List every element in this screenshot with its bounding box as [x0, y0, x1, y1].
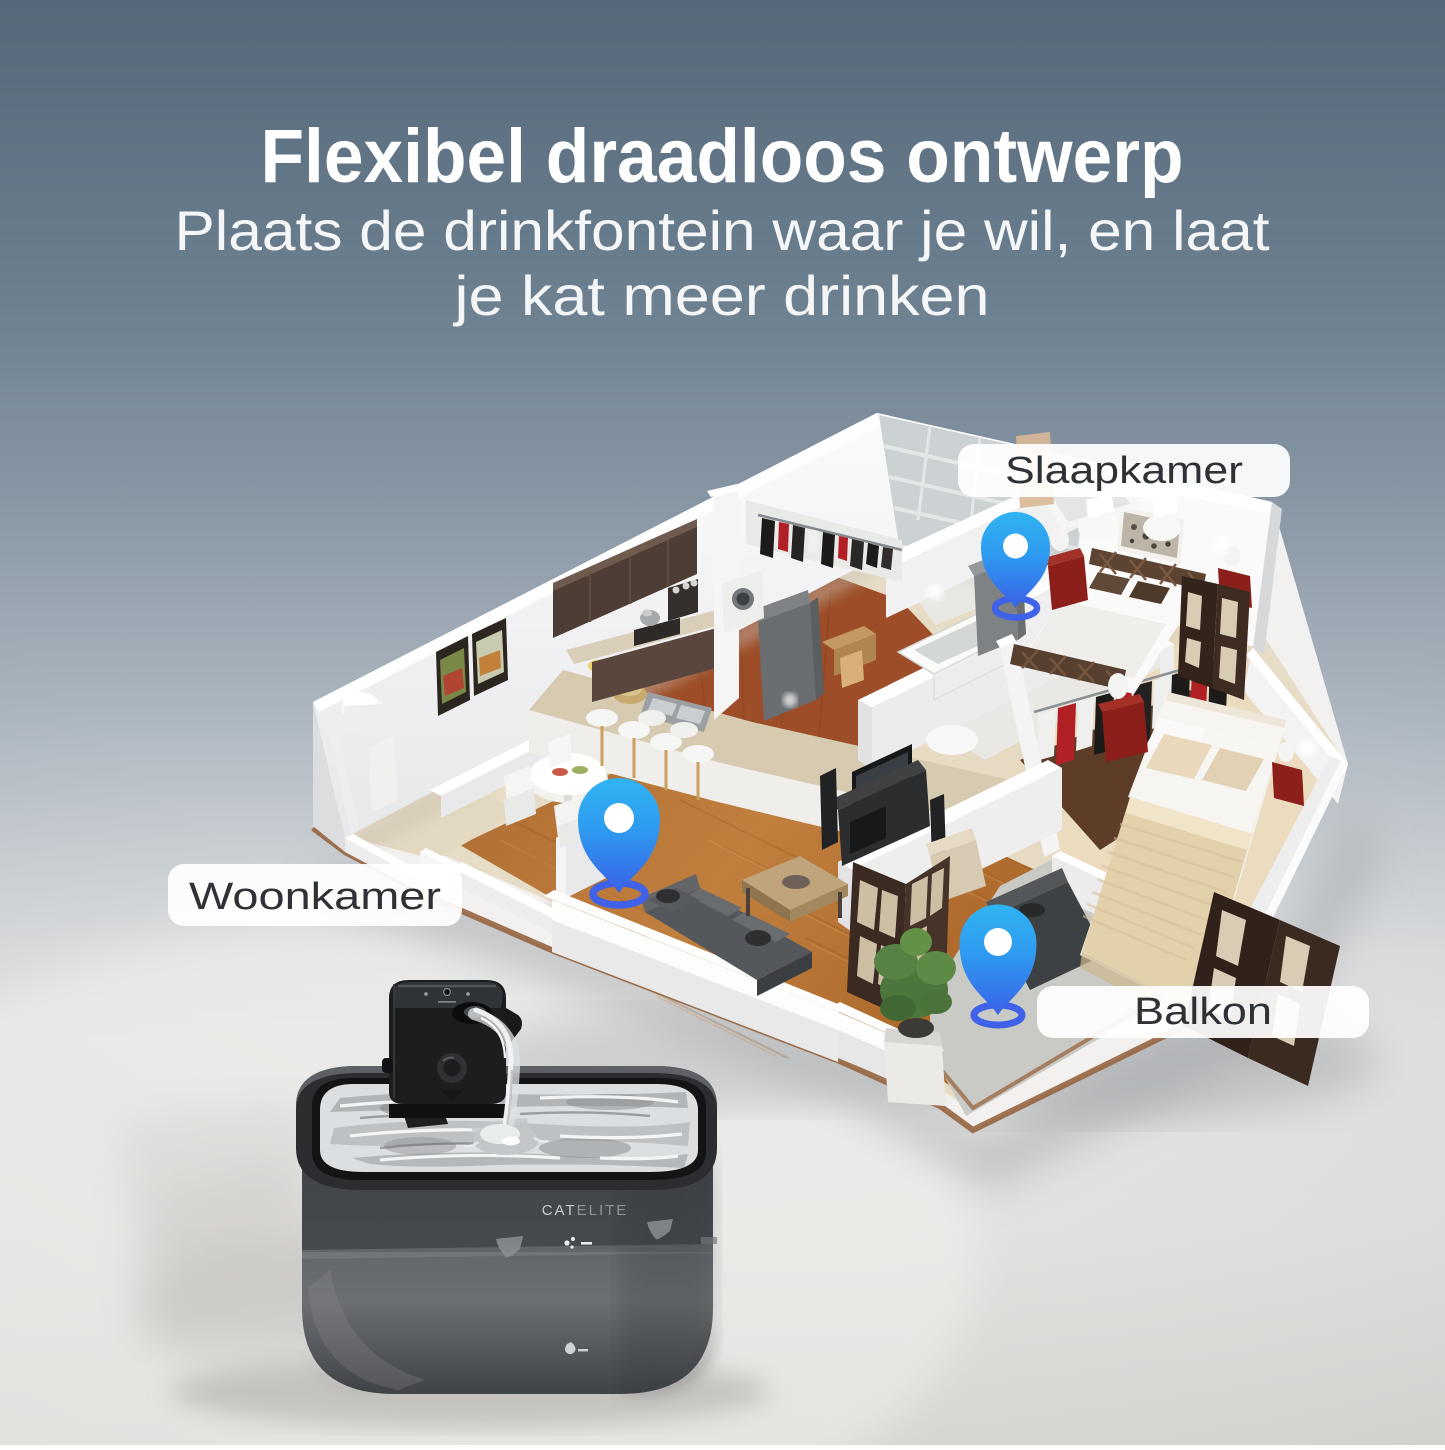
svg-text:Plaats de drinkfontein waar je: Plaats de drinkfontein waar je wil, en l…: [175, 199, 1270, 262]
svg-text:CATELITE: CATELITE: [542, 1202, 629, 1219]
svg-text:Slaapkamer: Slaapkamer: [1005, 450, 1243, 492]
svg-text:Woonkamer: Woonkamer: [189, 876, 441, 918]
svg-text:je kat meer drinken: je kat meer drinken: [452, 264, 989, 327]
svg-text:Flexibel draadloos ontwerp: Flexibel draadloos ontwerp: [261, 114, 1184, 199]
svg-text:Balkon: Balkon: [1134, 991, 1272, 1033]
